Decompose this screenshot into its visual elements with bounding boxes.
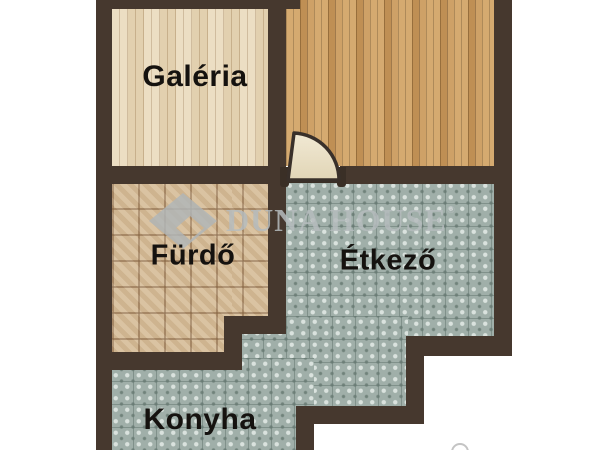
door-swing-icon (278, 126, 348, 186)
floor-plan: DUNA HOUSE® Galéria Fürdő Étkező Konyha (0, 0, 600, 450)
wall-step-h2 (296, 406, 424, 424)
wall-furdo-bottom (96, 352, 242, 370)
room-label-konyha: Konyha (143, 403, 256, 437)
room-label-galeria: Galéria (142, 60, 247, 94)
watermark-text: DUNA HOUSE® (226, 202, 455, 239)
cropped-object (451, 443, 469, 450)
wall-right (494, 0, 512, 356)
wall-horizontal-right (340, 166, 512, 184)
watermark-brand: DUNA HOUSE (226, 202, 447, 238)
room-label-etkezo: Étkező (340, 245, 436, 278)
wall-step-v2 (296, 406, 314, 450)
registered-mark: ® (447, 204, 455, 216)
wall-left (96, 0, 112, 450)
room-label-furdo: Fürdő (151, 240, 236, 273)
wall-horizontal-left (96, 166, 286, 184)
